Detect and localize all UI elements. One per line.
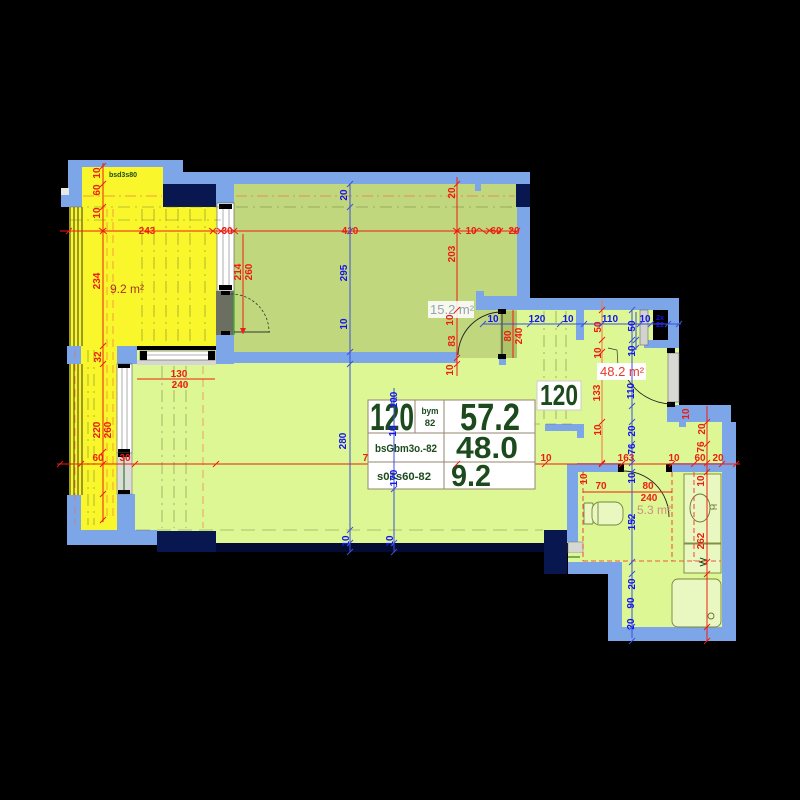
svg-text:bsGbm3o.-82: bsGbm3o.-82 (375, 443, 437, 455)
svg-text:110: 110 (626, 382, 637, 399)
svg-text:240: 240 (514, 327, 525, 344)
svg-text:10: 10 (445, 364, 456, 376)
svg-text:9.2: 9.2 (451, 458, 491, 493)
svg-text:s03s60-82: s03s60-82 (377, 471, 431, 483)
svg-text:262: 262 (696, 532, 707, 549)
svg-text:30: 30 (221, 226, 233, 237)
svg-text:170: 170 (389, 469, 400, 486)
svg-text:bsd3s80: bsd3s80 (109, 170, 137, 179)
svg-text:83: 83 (447, 335, 458, 347)
svg-text:80: 80 (503, 330, 514, 342)
svg-text:48.2 m²: 48.2 m² (600, 364, 645, 379)
svg-text:10: 10 (593, 347, 604, 359)
svg-text:82: 82 (425, 418, 436, 429)
svg-text:130: 130 (171, 369, 188, 380)
svg-text:2x: 2x (656, 315, 664, 322)
svg-text:10: 10 (562, 314, 574, 325)
svg-text:76: 76 (696, 441, 707, 453)
svg-text:80: 80 (642, 481, 654, 492)
svg-text:60: 60 (92, 453, 104, 464)
svg-text:240: 240 (172, 380, 189, 391)
svg-text:10: 10 (487, 314, 499, 325)
svg-text:220: 220 (92, 421, 103, 438)
svg-text:295: 295 (339, 264, 350, 281)
svg-text:10: 10 (681, 408, 692, 420)
svg-text:20: 20 (627, 425, 638, 437)
svg-text:bym: bym (422, 406, 439, 417)
svg-text:9.2 m²: 9.2 m² (110, 282, 144, 296)
svg-text:260: 260 (244, 263, 255, 280)
svg-text:10: 10 (627, 472, 638, 484)
svg-text:20: 20 (508, 226, 520, 237)
svg-text:90: 90 (626, 597, 637, 609)
svg-text:20: 20 (447, 187, 458, 199)
svg-text:70: 70 (595, 481, 607, 492)
svg-text:280: 280 (338, 432, 349, 449)
svg-text:32: 32 (93, 351, 104, 363)
svg-text:10: 10 (579, 473, 590, 485)
svg-text:152: 152 (627, 513, 638, 530)
svg-text:10: 10 (339, 318, 350, 330)
svg-text:20: 20 (339, 189, 350, 201)
svg-text:234: 234 (92, 272, 103, 289)
svg-text:120: 120 (540, 380, 578, 412)
svg-text:10: 10 (696, 475, 707, 487)
svg-text:203: 203 (447, 245, 458, 262)
svg-text:20: 20 (697, 423, 708, 435)
svg-text:10: 10 (445, 314, 456, 326)
svg-text:214: 214 (233, 263, 244, 280)
svg-text:60: 60 (490, 226, 502, 237)
svg-text:5.3 m²: 5.3 m² (637, 503, 671, 517)
svg-text:10: 10 (385, 535, 396, 547)
svg-text:260: 260 (103, 421, 114, 438)
svg-text:10: 10 (593, 424, 604, 436)
svg-text:10: 10 (92, 167, 103, 179)
svg-text:22: 22 (656, 322, 664, 329)
svg-text:20: 20 (712, 453, 724, 464)
svg-text:30: 30 (119, 453, 131, 464)
svg-text:243: 243 (139, 226, 156, 237)
svg-text:110: 110 (602, 314, 619, 325)
svg-text:20: 20 (627, 578, 638, 590)
svg-text:76: 76 (627, 443, 638, 455)
svg-text:10: 10 (388, 425, 399, 437)
svg-text:10: 10 (341, 535, 352, 547)
svg-text:133: 133 (592, 384, 603, 401)
